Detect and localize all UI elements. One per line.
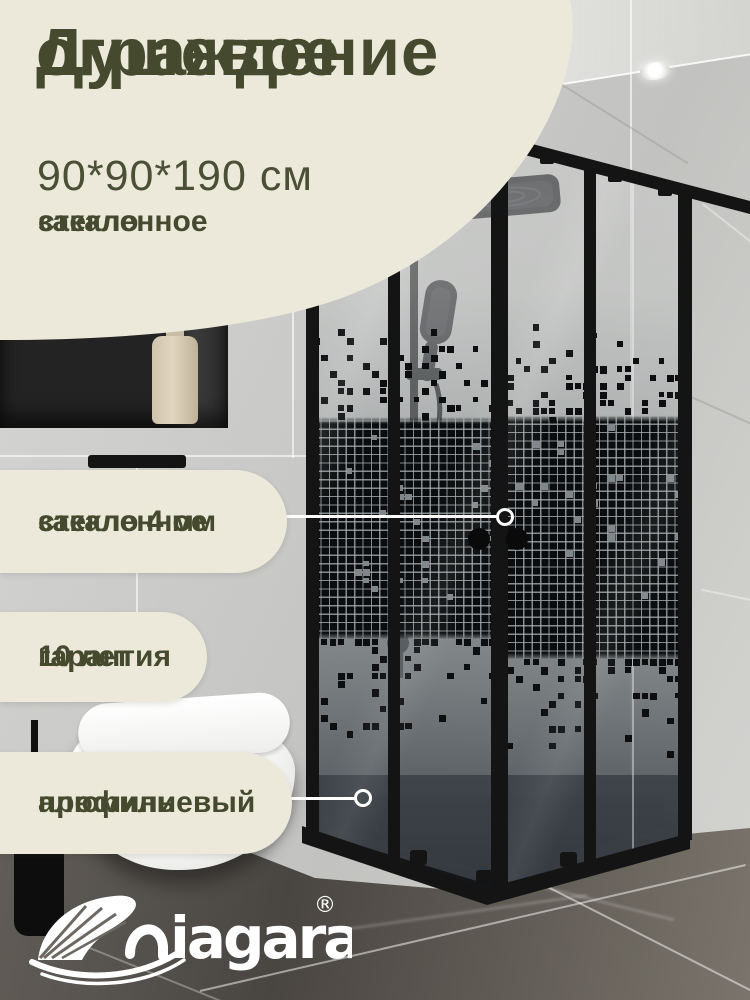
roller (658, 184, 672, 196)
pointer-circle-glass (496, 508, 514, 526)
pointer-circle-profile (354, 789, 372, 807)
product-card-image: Душевое ограждение 90*90*190 см закаленн… (0, 0, 750, 1000)
niagara-wave-icon (32, 896, 184, 984)
callout-glass-line2: стекло 4 мм (38, 505, 216, 539)
door-knob-left (468, 528, 490, 550)
callout-glass-4mm: закаленное стекло 4 мм (0, 470, 287, 573)
door-guide (410, 850, 427, 865)
brand-logo: iagara ® (22, 880, 352, 990)
registered-trademark: ® (314, 893, 336, 918)
roller (608, 170, 622, 182)
callout-warranty-line2: 10 лет (38, 640, 129, 674)
pointer-line-glass (255, 515, 497, 518)
door-knob-right (506, 528, 528, 550)
door-guide (476, 870, 493, 885)
product-title-line2: ограждение (36, 22, 439, 84)
door-guide (560, 852, 577, 867)
callout-aluminum-profile: алюминиевый профиль (0, 752, 292, 854)
post-right (678, 189, 692, 840)
feature-line2: стекло (38, 205, 138, 238)
callout-profile-line2: профиль (38, 786, 175, 820)
callout-warranty: гарантия 10 лет (0, 612, 207, 702)
product-dimensions: 90*90*190 см (37, 152, 313, 201)
